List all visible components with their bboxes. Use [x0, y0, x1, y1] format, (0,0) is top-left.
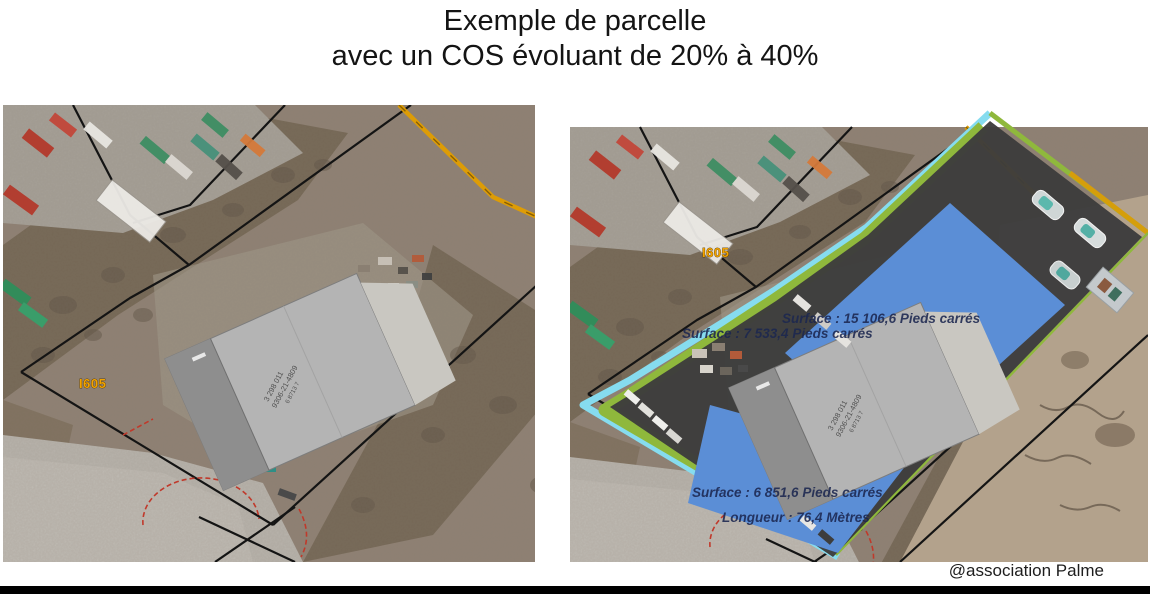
- aerial-map-after: I605 Surface : 15 106,6 Pieds carrés Sur…: [570, 105, 1148, 562]
- surface-label-mid: Surface : 7 533,4 Pieds carrés: [682, 326, 873, 341]
- slide-title: Exemple de parcelle avec un COS évoluant…: [0, 4, 1150, 75]
- surface-label-small: Surface : 6 851,6 Pieds carrés: [692, 485, 883, 500]
- slide: 3 298 011 9306-21-4809 6 8713 7 Exemple …: [0, 0, 1150, 594]
- slide-title-line1: Exemple de parcelle: [0, 4, 1150, 39]
- length-label: Longueur : 76,4 Mètres: [722, 510, 870, 525]
- aerial-map-before-svg: I605: [3, 105, 535, 562]
- surface-label-large: Surface : 15 106,6 Pieds carrés: [782, 311, 981, 326]
- aerial-map-before: I605: [3, 105, 535, 562]
- road-label-left: I605: [79, 376, 106, 391]
- attribution: @association Palme: [949, 561, 1104, 581]
- bottom-divider: [0, 586, 1150, 594]
- slide-title-line2: avec un COS évoluant de 20% à 40%: [0, 39, 1150, 74]
- aerial-map-after-svg: I605 Surface : 15 106,6 Pieds carrés Sur…: [570, 105, 1148, 562]
- road-label-right: I605: [702, 245, 729, 260]
